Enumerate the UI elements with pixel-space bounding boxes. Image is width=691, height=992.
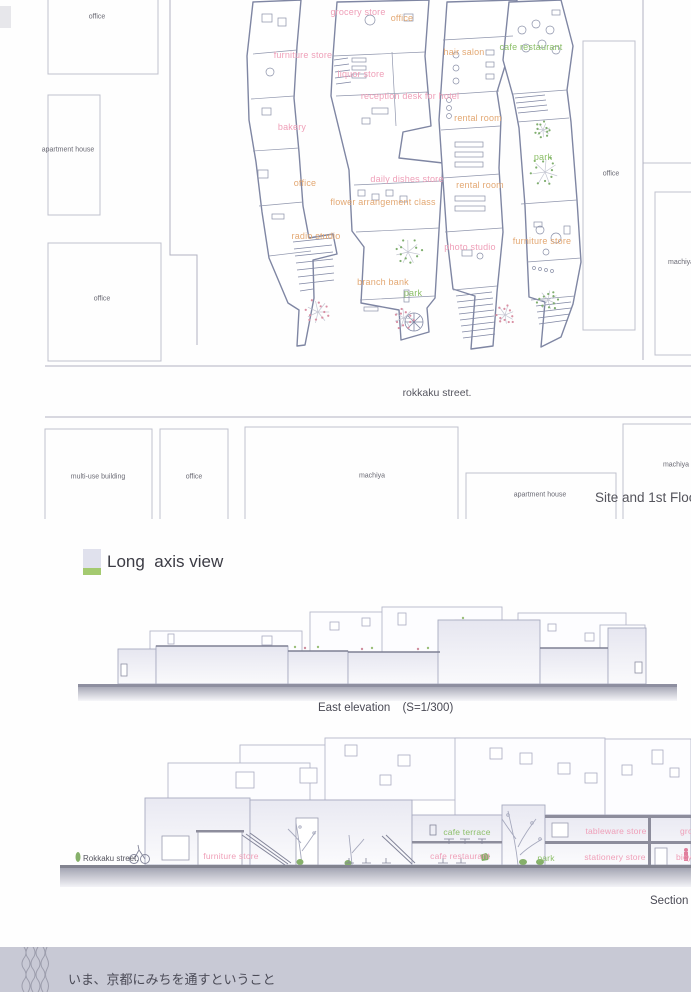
section-caption: Section <box>650 895 688 907</box>
east-elevation-caption-row: East elevation (S=1/300) <box>318 702 453 714</box>
plan-label-office: office <box>391 13 414 23</box>
section-label-stationery-store: stationery store <box>584 852 645 862</box>
section-street-label: Rokkaku street. <box>83 854 139 863</box>
building-office-topleft <box>48 0 158 74</box>
footer-band: いま、京都にみちを通すということ <box>0 947 691 992</box>
plan-label-reception-desk: reception desk for hotel <box>361 91 459 101</box>
plan-label-branch-bank: branch bank <box>357 277 409 287</box>
legend-square-icon <box>83 549 101 568</box>
plan-strip-4 <box>503 0 581 347</box>
street-label: rokkaku street. <box>403 387 472 399</box>
plan-label-furniture-store-2: furniture store <box>513 236 572 246</box>
section-label-cafe-terrace: cafe terrace <box>443 827 490 837</box>
legend-bar-icon <box>83 568 101 575</box>
plan-label-hair-salon: hair salon <box>443 47 484 57</box>
plan-label-rental-room-1: rental room <box>454 113 502 123</box>
building-office-right <box>583 41 635 330</box>
ctx-label-office-bottomleft: office <box>94 296 111 303</box>
plan-label-rental-room-2: rental room <box>456 180 504 190</box>
section-label-grocery-store: grocery store <box>680 826 691 836</box>
footer-title-japanese: いま、京都にみちを通すということ <box>68 969 275 988</box>
section-label-furniture-store: furniture store <box>203 851 258 861</box>
ctx-label-machiya-southeast: machiya <box>663 462 689 469</box>
site-plan-caption: Site and 1st Floor Plan <box>595 490 691 505</box>
ctx-label-machiya-right: machiya <box>668 259 691 266</box>
east-elevation-caption: East elevation <box>318 702 390 714</box>
long-axis-view-title: Long axis view <box>107 552 223 572</box>
east-elevation-scale: (S=1/300) <box>402 702 453 714</box>
section-label-park: park <box>537 853 554 863</box>
plan-label-office-2: office <box>294 178 317 188</box>
west-path-edge <box>170 0 197 345</box>
plan-label-bakery: bakery <box>278 122 306 132</box>
plan-label-grocery-store: grocery store <box>330 7 385 17</box>
ctx-label-apartment-left: apartment house <box>42 147 95 154</box>
ctx-label-office-topleft: office <box>89 14 106 21</box>
ctx-label-apartment-south: apartment house <box>514 492 567 499</box>
plan-strip-2 <box>331 0 443 340</box>
east-elevation-drawing <box>0 600 691 715</box>
east-ground <box>78 684 677 701</box>
building-apartment-house-left <box>48 95 100 215</box>
ctx-label-machiya-south: machiya <box>359 473 385 480</box>
building-machiya-right <box>655 192 691 355</box>
section-label-cafe-restaurant: cafe restaurant <box>430 851 490 861</box>
ctx-label-multiuse: multi-use building <box>71 474 125 481</box>
building-machiya-south <box>245 427 458 519</box>
section-label-bicycle-store: bicycle store <box>676 852 691 862</box>
section-drawing <box>0 735 691 887</box>
plan-label-daily-dishes: daily dishes store <box>370 174 443 184</box>
plan-label-park-1: park <box>534 152 552 162</box>
plan-label-cafe-restaurant: cafe restaurant <box>499 42 562 52</box>
plan-label-photo-studio: photo studio <box>444 242 495 252</box>
section-label-tableware-store: tableware store <box>585 826 646 836</box>
building-topright <box>643 0 691 163</box>
footer-washi-pattern <box>0 947 60 992</box>
ctx-label-office-south: office <box>186 474 203 481</box>
presentation-board: grocery store office furniture store hai… <box>0 0 691 992</box>
section-ground <box>60 865 691 887</box>
plan-label-flower-class: flower arrangement class <box>330 197 435 207</box>
ctx-label-office-right: office <box>603 171 620 178</box>
plan-label-furniture-store: furniture store <box>274 50 333 60</box>
plan-label-park-2: park <box>404 288 422 298</box>
plan-label-radio-studio: radio studio <box>292 231 341 241</box>
plan-label-liquor-store: liquor store <box>338 69 385 79</box>
